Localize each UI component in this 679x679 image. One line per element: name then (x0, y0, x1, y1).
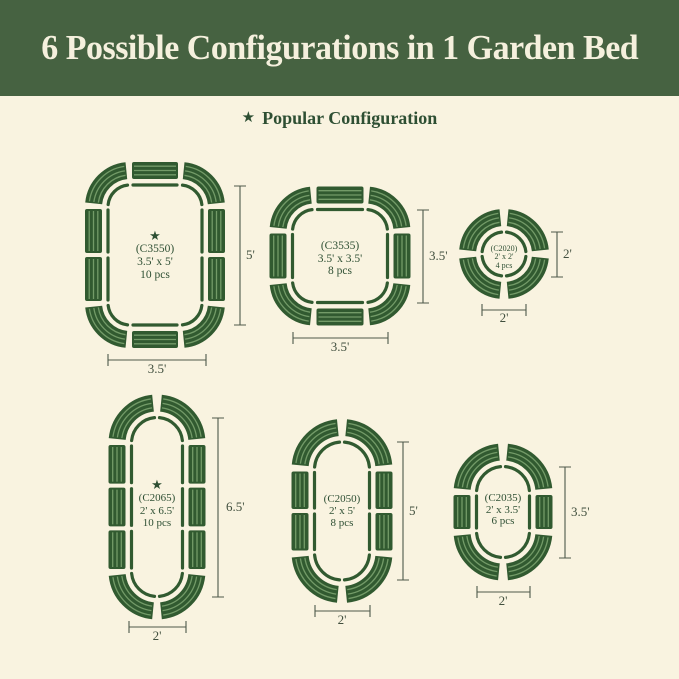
width-dimension-label: 2' (453, 594, 553, 608)
popular-star-icon: ★ (107, 478, 207, 492)
height-dimension-label: 3.5' (429, 249, 448, 263)
height-dimension-label: 5' (246, 248, 255, 262)
width-dimension-label: 3.5' (290, 340, 390, 354)
config-label-C2065: ★ (C2065) 2' x 6.5' 10 pcs (107, 478, 207, 530)
width-dimension-label: 3.5' (107, 362, 207, 376)
config-size-label: 2' x 5' (292, 505, 392, 517)
config-label-C3550: ★ (C3550) 3.5' x 5' 10 pcs (105, 229, 205, 282)
config-label-C2050: (C2050) 2' x 5' 8 pcs (292, 493, 392, 529)
width-dimension-label: 2' (292, 613, 392, 627)
config-pieces-label: 10 pcs (107, 517, 207, 530)
config-label-C2035: (C2035) 2' x 3.5' 6 pcs (453, 493, 553, 528)
config-model-label: (C2065) (107, 492, 207, 505)
config-pieces-label: 8 pcs (290, 265, 390, 278)
config-model-label: (C2035) (453, 493, 553, 505)
config-pieces-label: 8 pcs (292, 517, 392, 529)
width-dimension-label: 2' (474, 311, 534, 325)
config-label-C3535: (C3535) 3.5' x 3.5' 8 pcs (290, 240, 390, 278)
height-dimension-label: 3.5' (571, 505, 590, 519)
config-size-label: 3.5' x 5' (105, 256, 205, 269)
width-dimension-label: 2' (107, 629, 207, 643)
height-dimension-label: 6.5' (226, 500, 245, 514)
config-model-label: (C3550) (105, 243, 205, 256)
config-size-label: 3.5' x 3.5' (290, 253, 390, 266)
config-label-C2020: (C2020) 2' x 2' 4 pcs (474, 245, 534, 270)
config-model-label: (C3535) (290, 240, 390, 253)
config-pieces-label: 4 pcs (474, 262, 534, 270)
height-dimension-label: 2' (563, 247, 572, 261)
config-model-label: (C2050) (292, 493, 392, 505)
config-pieces-label: 6 pcs (453, 516, 553, 528)
height-dimension-label: 5' (409, 504, 418, 518)
popular-star-icon: ★ (105, 229, 205, 243)
config-size-label: 2' x 6.5' (107, 505, 207, 518)
config-pieces-label: 10 pcs (105, 269, 205, 282)
